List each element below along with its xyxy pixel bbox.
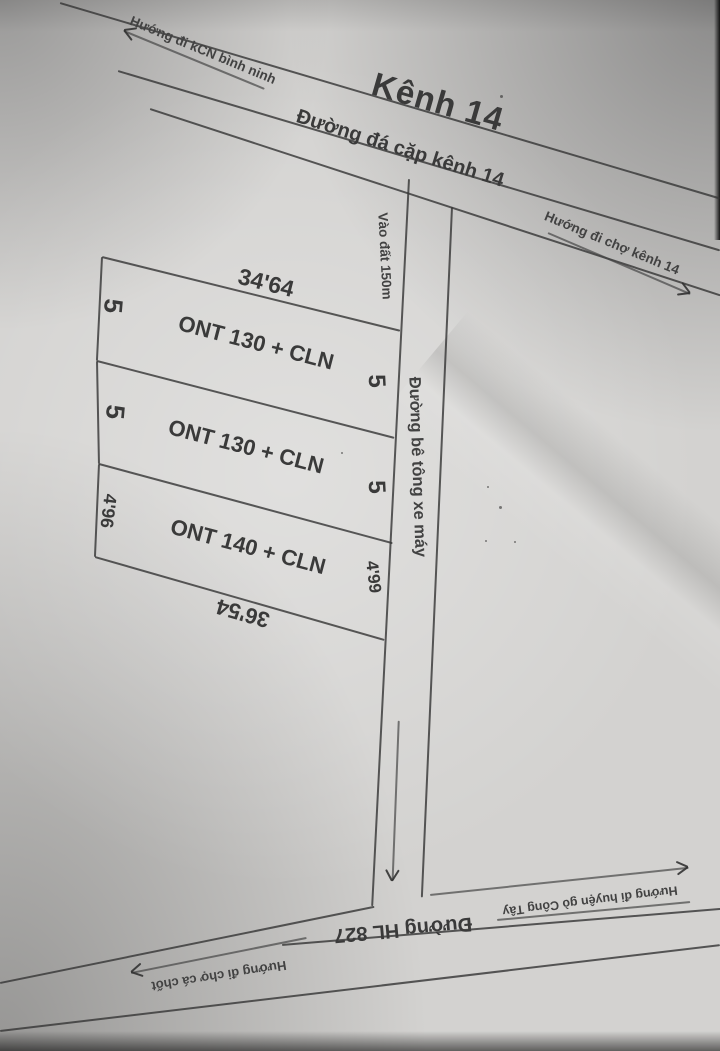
canal-title: Kênh 14	[368, 65, 509, 139]
paper-speck	[487, 486, 489, 488]
plot1-right-dimension: 5	[362, 374, 391, 389]
photo-right-edge	[714, 0, 720, 240]
land-sketch-photo: Kênh 14 Đường đá cặp kênh 14 Hướng đi kC…	[0, 0, 720, 1051]
plot3-bottom-dimension: 36'54	[213, 593, 272, 633]
paper-speck	[499, 506, 502, 509]
hl827-bottom-edge	[0, 944, 720, 1032]
paper-speck	[341, 452, 343, 454]
plot2-label: ONT 130 + CLN	[166, 414, 327, 479]
road-down-arrow-line	[392, 721, 400, 881]
plot1-label: ONT 130 + CLN	[176, 310, 337, 375]
paper-speck	[485, 540, 487, 542]
hl827-road-label: Đường HL 827	[333, 912, 473, 947]
arrow-down-icon	[384, 865, 401, 882]
plot2-right-dimension: 5	[362, 480, 391, 495]
paper-crease	[301, 189, 720, 871]
paper-speck	[514, 541, 516, 543]
arrow-left-icon	[129, 961, 148, 980]
entry-distance-label: Vào đất 150m	[375, 212, 395, 300]
paper-speck	[500, 95, 503, 98]
plot1-left-dimension: 5	[97, 297, 129, 314]
hl827-top-edge-left	[0, 906, 375, 984]
plot3-right-dimension: 4'99	[361, 560, 385, 595]
direction-kcn-binh-ninh-label: Hướng đi kCN bình ninh	[128, 13, 278, 87]
arrow-right-icon	[671, 859, 689, 877]
plot3-label: ONT 140 + CLN	[168, 514, 329, 580]
plot1-top-dimension: 34'64	[235, 263, 296, 303]
plot2-left-dimension: 5	[99, 403, 131, 420]
plot3-left-dimension: 4'96	[95, 493, 120, 530]
photo-bottom-shadow	[0, 1031, 720, 1051]
plot1-plot2-divider	[97, 360, 395, 439]
